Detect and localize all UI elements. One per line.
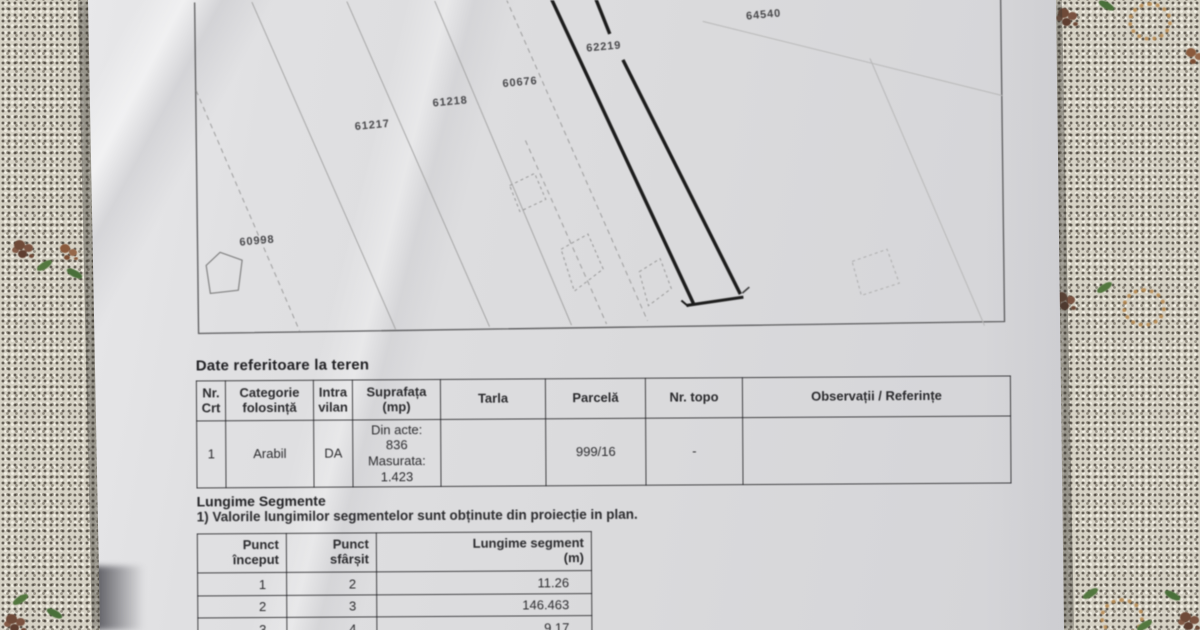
column-header: Categorie folosință — [225, 380, 313, 421]
table-cell: 2 — [198, 595, 287, 618]
faint-boundary-lines — [703, 20, 1004, 328]
land-section-title: Date referitoare la teren — [196, 356, 370, 374]
table-row: 1ArabilDADin acte: 836 Masurata: 1.42399… — [197, 416, 1011, 488]
segments-table: Punct începutPunct sfârșitLungime segmen… — [197, 531, 593, 630]
surveyed-parcel-outline — [546, 0, 743, 307]
table-row: 349.17 — [198, 616, 592, 630]
table-header-row: Punct începutPunct sfârșitLungime segmen… — [197, 532, 591, 573]
table-row: 1211.26 — [198, 571, 592, 596]
building-outline — [206, 252, 242, 293]
table-cell: 146.463 — [377, 594, 592, 617]
parcel-corner-tick — [742, 287, 749, 293]
parcel-strip-lines — [248, 0, 572, 330]
dashed-building-outlines — [510, 173, 672, 307]
column-header: Lungime segment (m) — [376, 532, 591, 572]
segments-section-title: Lungime Segmente — [197, 493, 326, 510]
table-cell: 3 — [287, 595, 377, 618]
table-row: 23146.463 — [198, 594, 592, 618]
table-cell: 2 — [287, 572, 377, 596]
table-cell — [441, 419, 546, 487]
table-cell: Arabil — [226, 420, 314, 488]
column-header: Suprafața (mp) — [352, 379, 440, 420]
cadastral-map — [0, 0, 1200, 630]
table-cell: 999/16 — [546, 418, 646, 486]
column-header: Tarla — [440, 379, 545, 420]
column-header: Parcelă — [545, 378, 645, 419]
table-cell: Din acte: 836 Masurata: 1.423 — [353, 419, 441, 487]
column-header: Nr. Crt — [196, 381, 225, 421]
photo-scene: 645406221960676612186121760998 Date refe… — [0, 0, 1200, 630]
table-cell: DA — [314, 420, 353, 487]
table-cell: 3 — [198, 617, 287, 630]
table-cell: 9.17 — [377, 616, 592, 630]
table-cell: 4 — [287, 617, 377, 630]
table-cell: 11.26 — [377, 571, 592, 595]
segments-note: 1) Valorile lungimilor segmentelor sunt … — [197, 507, 638, 525]
column-header: Observații / Referințe — [742, 376, 1010, 418]
document-content: 645406221960676612186121760998 Date refe… — [0, 0, 1200, 630]
table-cell: 1 — [198, 572, 287, 596]
table-cell — [743, 416, 1011, 485]
land-data-table: Nr. CrtCategorie folosințăIntra vilanSup… — [196, 375, 1012, 488]
dashed-strip-lines — [196, 0, 648, 331]
table-header-row: Nr. CrtCategorie folosințăIntra vilanSup… — [196, 376, 1010, 421]
column-header: Intra vilan — [313, 380, 352, 420]
column-header: Nr. topo — [645, 378, 742, 419]
column-header: Punct început — [197, 533, 286, 573]
table-cell: 1 — [197, 421, 226, 488]
faint-building-outline — [852, 249, 899, 295]
column-header: Punct sfârșit — [286, 533, 376, 573]
table-cell: - — [646, 418, 743, 486]
